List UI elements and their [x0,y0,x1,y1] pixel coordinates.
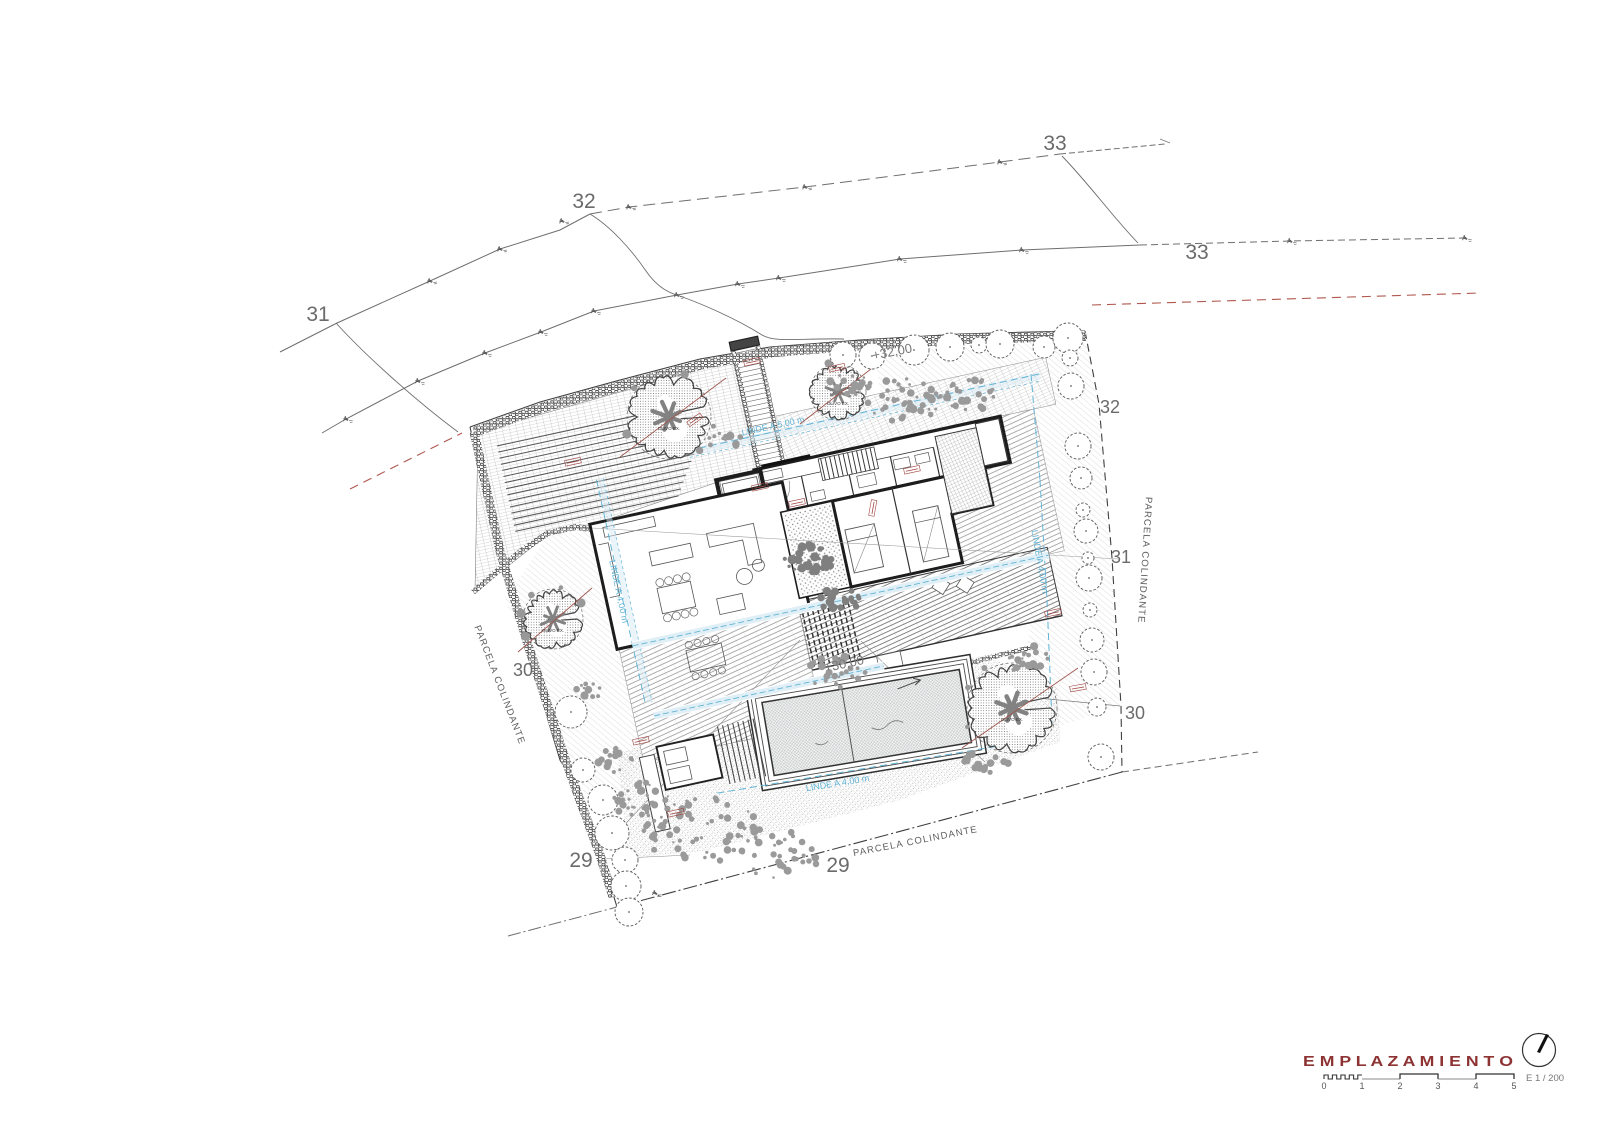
svg-text:2: 2 [1397,1081,1402,1091]
svg-text:0: 0 [1321,1081,1326,1091]
svg-text:30: 30 [513,660,533,680]
svg-text:32: 32 [572,190,595,213]
svg-text:31: 31 [1111,547,1131,567]
svg-text:29: 29 [569,849,592,872]
svg-text:33: 33 [1185,241,1208,264]
svg-text:4: 4 [1473,1081,1478,1091]
svg-text:31: 31 [306,303,329,326]
svg-text:OLIVO EX.: OLIVO EX. [658,426,680,431]
svg-text:E 1 / 200: E 1 / 200 [1526,1073,1564,1084]
svg-text:3: 3 [1435,1081,1440,1091]
svg-text:OLIVO EX.: OLIVO EX. [542,628,564,633]
svg-text:32: 32 [1100,397,1120,417]
svg-text:E M P L A Z A M I E N T O: E M P L A Z A M I E N T O [1303,1054,1513,1070]
svg-text:5: 5 [1511,1081,1516,1091]
svg-text:29: 29 [826,854,849,877]
svg-text:33: 33 [1043,132,1066,155]
svg-text:30: 30 [1125,703,1145,723]
svg-text:OLIVO EX.: OLIVO EX. [1001,717,1023,722]
svg-text:1: 1 [1359,1081,1364,1091]
svg-text:OLIVO EX.: OLIVO EX. [827,401,849,406]
